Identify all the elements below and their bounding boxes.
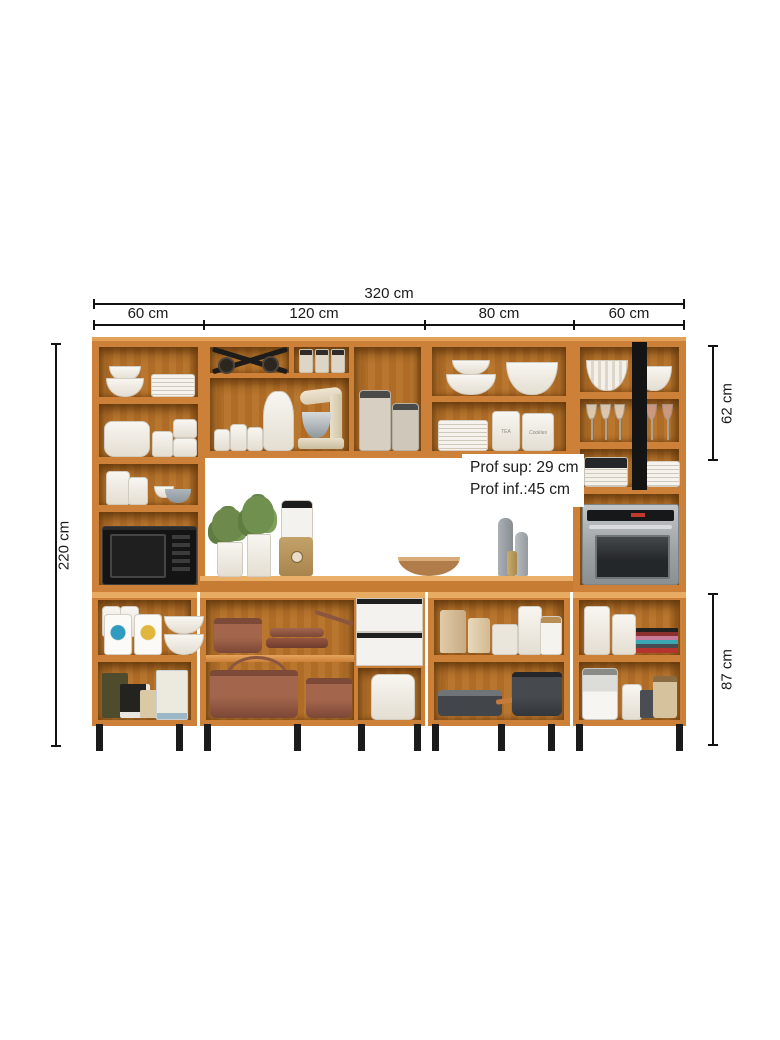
paper-bag [468,618,490,653]
pitcher [263,391,294,451]
depth-note-line1: Prof sup: 29 cm [470,457,584,479]
leg [358,724,365,751]
plant-foliage [242,496,274,534]
dark-stockpot [512,672,562,716]
dark-pan-glass-lid [438,690,502,716]
right-tower-shelf-2 [580,399,679,442]
bowl [164,616,204,634]
base-center-lower-cell [358,668,421,720]
mixer-bowl [302,412,331,438]
cookies-jar-label: Cookies [523,430,553,436]
base-left-shelf-1 [98,600,191,655]
tick [93,299,95,309]
leg [676,724,683,751]
section-width-label-1: 60 cm [108,305,188,322]
copper-pan [270,628,324,637]
tick [93,320,95,330]
section-width-label-2: 120 cm [274,305,354,322]
base-left-shelf-2 [98,662,191,720]
leg [176,724,183,751]
upper-80-shelf-1 [432,347,566,396]
upper-80-shelf-2: TEA Cookies [432,402,566,451]
tin [134,614,162,655]
section-widths-dimension-line [93,324,685,326]
copper-pot [306,678,352,718]
spice-jar [315,349,329,373]
oven-handle [589,525,672,529]
blender-base [279,537,313,576]
oven-window [595,535,670,579]
mixer-base [298,438,344,449]
canister-cell [354,347,421,451]
leg [294,724,301,751]
wine-glass [646,404,657,440]
microwave-niche [99,512,198,585]
spice-jar-cell [294,347,349,373]
tick [573,320,575,330]
section-width-label-4: 60 cm [589,305,669,322]
wine-bottle [262,356,279,373]
food-box [156,670,188,720]
base-80-shelf-1 [434,600,564,655]
stoneware-crock [653,676,677,718]
dark-plate-stack [584,457,628,487]
section-width-label-3: 80 cm [459,305,539,322]
white-kettle [371,674,415,720]
canister [518,606,542,655]
teapot [104,421,150,457]
spice-jar [331,349,345,373]
tin [104,614,132,655]
tall-canister [392,403,419,451]
total-height-label: 220 cm [56,518,73,574]
plate-stack [438,420,488,451]
wine-glass [586,404,597,440]
right-tower-shelf-1 [580,347,679,392]
bowl [446,374,496,395]
blender-jar [281,500,313,539]
microwave-door [110,534,166,578]
cookbook-stack [636,628,678,653]
tick [683,320,685,330]
small-gold-bottle [507,551,517,576]
wine-glass [614,404,625,440]
copper-pan [266,638,328,648]
oven-control-panel [587,510,674,521]
oven-niche [580,494,679,585]
upper-height-label: 62 cm [719,380,736,428]
wine-rack-cell [210,347,289,373]
tick [708,345,718,347]
microwave-keypad [172,535,190,575]
tea-jar: TEA [492,411,520,451]
fluted-bowl [586,360,628,391]
plastic-pack [492,624,518,655]
cup [230,424,247,451]
base-height-dimension-line [712,593,714,746]
leg [432,724,439,751]
base-height-label: 87 cm [719,646,736,694]
left-tower-shelf-1 [99,347,198,397]
large-bowl [506,362,558,395]
bowl [164,634,204,655]
mug [173,438,197,457]
canister-wood-lid [540,616,562,655]
tick [203,320,205,330]
microwave [102,526,197,585]
canister [612,614,636,655]
plate-stack [151,374,195,397]
canister [584,606,610,655]
flour-jar [582,668,618,720]
bowl [106,378,144,397]
leg [498,724,505,751]
base-80-shelf-2 [434,662,564,720]
product-dimension-diagram: 320 cm 60 cm 120 cm 80 cm 60 cm 220 cm 6… [0,0,780,1040]
leg [96,724,103,751]
drawer [356,632,423,666]
base-center-interior [206,600,354,720]
drawer [356,598,423,632]
wine-bottle [218,357,235,374]
mixer-stand [330,394,342,444]
black-panel [632,342,647,490]
plant-pot [217,542,243,577]
mug [152,431,173,457]
plant-pot [247,534,271,577]
plate-stack [646,461,680,487]
tick [708,593,718,595]
oven [582,504,679,585]
paper-bag [440,610,466,653]
tick [708,744,718,746]
tick [683,299,685,309]
tick [51,343,61,345]
blender-dial [291,551,303,563]
oven-display [631,513,645,517]
left-tower-shelf-2 [99,404,198,457]
upper-height-dimension-line [712,345,714,461]
depth-note-line2: Prof inf.:45 cm [470,479,584,501]
wine-glass [662,404,673,440]
gray-bowl [165,489,191,503]
tall-canister [359,390,391,451]
tea-jar-label: TEA [493,429,519,435]
cookies-jar: Cookies [522,413,554,451]
copper-stockpot [210,670,298,718]
total-width-label: 320 cm [339,285,439,302]
spice-jar [299,349,313,373]
countertop [200,576,573,592]
cup [214,429,230,451]
leg [576,724,583,751]
canister [106,471,130,505]
canister [128,477,148,505]
leg [414,724,421,751]
tick [424,320,426,330]
tick [708,459,718,461]
base-end-shelf-2 [579,662,680,720]
mug [173,419,197,438]
wine-glass [600,404,611,440]
base-end-shelf-1 [579,600,680,655]
pan-handle [314,610,353,626]
right-tower-shelf-3 [580,449,679,487]
leg [204,724,211,751]
depth-note: Prof sup: 29 cm Prof inf.:45 cm [462,454,584,507]
small-canister [622,684,642,720]
shelf [206,655,354,662]
copper-pot [214,618,262,653]
bowl [452,360,490,375]
left-tower-shelf-3 [99,464,198,505]
leg [548,724,555,751]
mixer-cell [210,378,349,451]
cup [247,427,263,451]
tick [51,745,61,747]
wooden-bowl [398,557,460,576]
plant-foliage [212,508,244,542]
